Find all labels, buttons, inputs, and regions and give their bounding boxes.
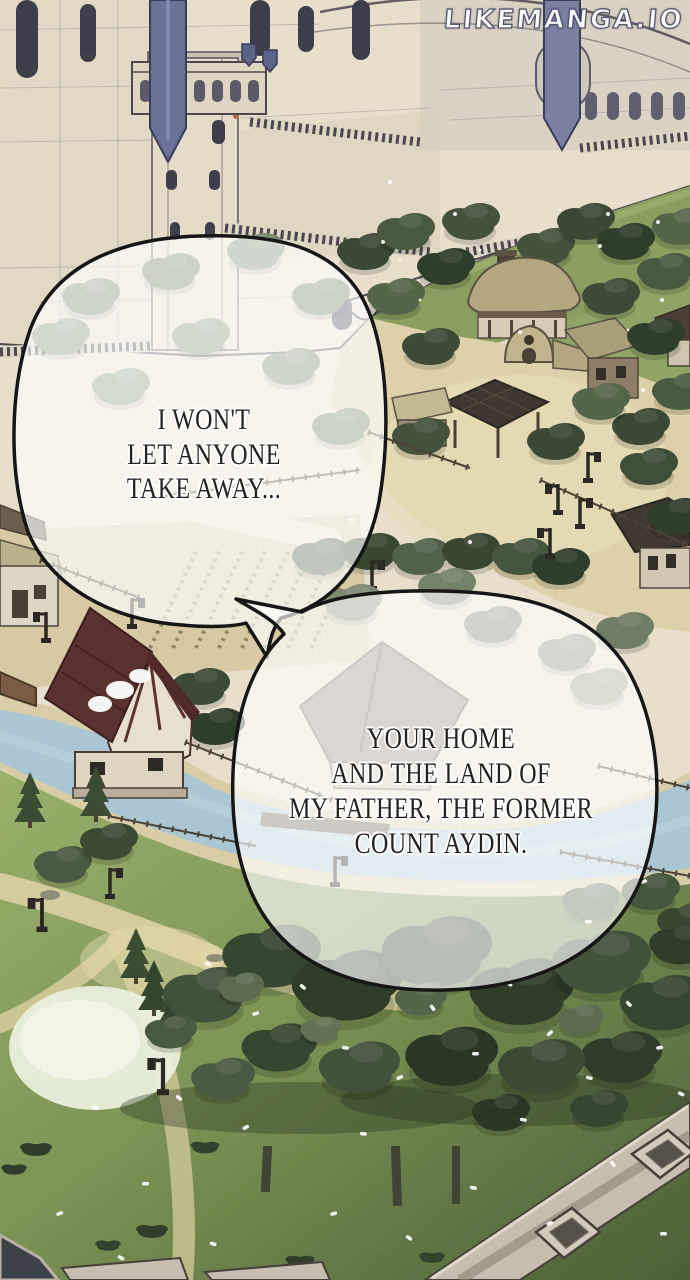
speech-bubble-2-text: YOUR HOME AND THE LAND OF MY FATHER, THE… bbox=[271, 588, 612, 1024]
webtoon-panel: I WON'T LET ANYONE TAKE AWAY... YOUR HOM… bbox=[0, 0, 690, 1280]
speech-line: AND THE LAND OF bbox=[331, 757, 551, 792]
speech-line: I WON'T bbox=[158, 403, 251, 438]
site-watermark: LIKEMANGA.IO bbox=[443, 5, 685, 35]
speech-line: TAKE AWAY... bbox=[127, 472, 281, 507]
speech-line: COUNT AYDIN. bbox=[355, 827, 528, 862]
speech-line: MY FATHER, THE FORMER bbox=[289, 792, 593, 827]
speech-line: LET ANYONE bbox=[127, 438, 281, 473]
speech-line: YOUR HOME bbox=[367, 722, 515, 757]
